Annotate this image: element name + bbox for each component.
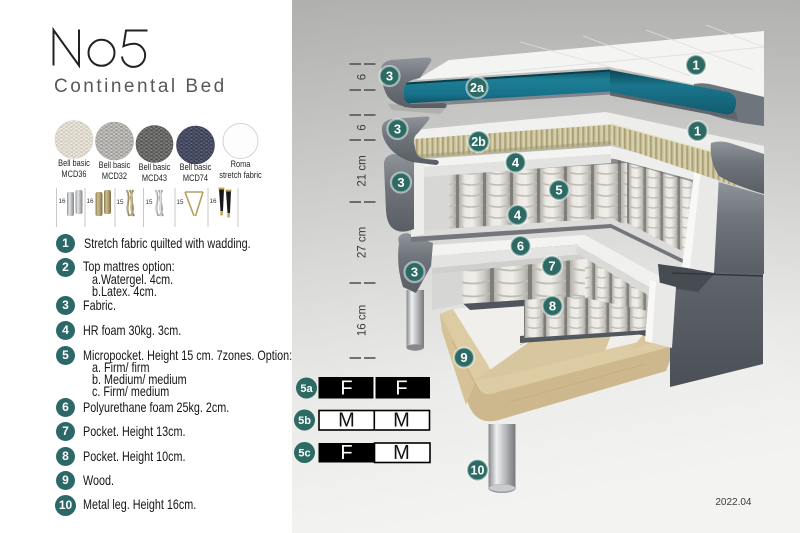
svg-text:21 cm: 21 cm: [357, 155, 369, 186]
svg-text:M: M: [393, 410, 410, 432]
svg-text:5c: 5c: [298, 448, 310, 460]
svg-text:1: 1: [692, 58, 699, 73]
svg-text:3: 3: [394, 122, 401, 137]
svg-text:3: 3: [386, 69, 393, 84]
svg-text:1: 1: [694, 124, 701, 139]
svg-text:6: 6: [517, 239, 524, 254]
svg-text:4: 4: [512, 155, 520, 170]
svg-text:F: F: [340, 442, 352, 464]
svg-text:5b: 5b: [298, 415, 311, 427]
svg-text:F: F: [340, 378, 352, 400]
svg-text:2022.04: 2022.04: [715, 497, 752, 508]
svg-text:M: M: [338, 410, 355, 432]
svg-text:7: 7: [548, 259, 555, 274]
svg-text:6: 6: [357, 74, 369, 80]
svg-text:5: 5: [555, 183, 562, 198]
svg-text:5a: 5a: [300, 383, 313, 395]
svg-text:F: F: [395, 378, 407, 400]
svg-text:16 cm: 16 cm: [357, 305, 369, 336]
svg-text:9: 9: [460, 350, 467, 365]
svg-text:2b: 2b: [471, 135, 486, 149]
svg-text:3: 3: [411, 265, 418, 280]
svg-text:2a: 2a: [470, 81, 485, 95]
svg-text:6: 6: [357, 124, 369, 130]
svg-text:27 cm: 27 cm: [357, 227, 369, 258]
svg-text:3: 3: [397, 175, 404, 190]
svg-text:M: M: [393, 442, 410, 464]
svg-text:8: 8: [549, 299, 556, 314]
svg-text:10: 10: [471, 464, 485, 478]
svg-text:4: 4: [514, 208, 522, 223]
